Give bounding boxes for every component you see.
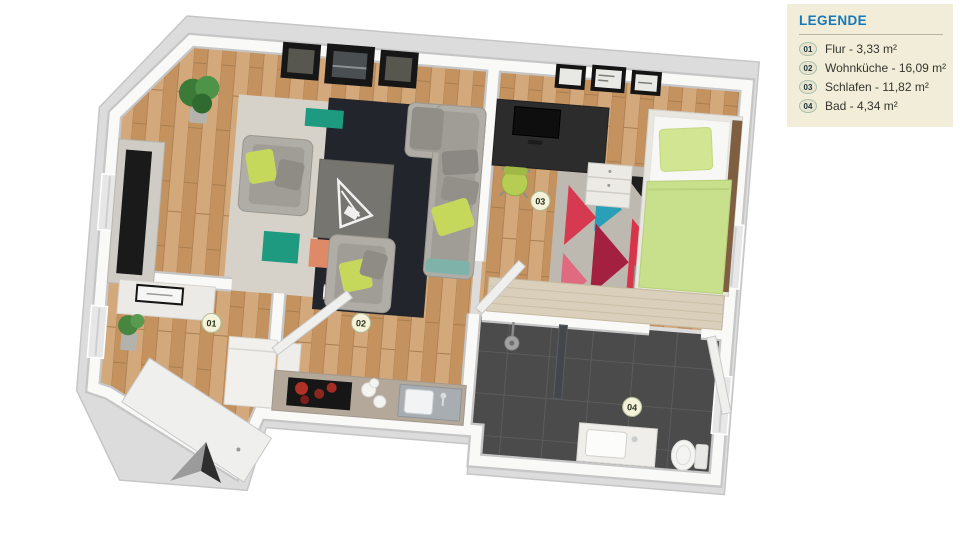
- bed-duvet: [639, 173, 732, 293]
- cooktop: [286, 377, 352, 410]
- hall-wardrobe: [117, 279, 215, 321]
- bath-vanity: [577, 423, 658, 467]
- monitor: [513, 107, 561, 139]
- svg-text:01: 01: [206, 318, 217, 329]
- apartment: 01 02 03 04: [70, 10, 759, 529]
- shower-arm: [512, 322, 513, 336]
- legend-badge-02: 02: [799, 61, 817, 75]
- legend-badge-03: 03: [799, 80, 817, 94]
- legend-panel: LEGENDE 01 Flur - 3,33 m² 02 Wohnküche -…: [787, 4, 953, 127]
- legend-title: LEGENDE: [799, 13, 943, 28]
- floorplan-page: 01 02 03 04 LEGEND: [0, 0, 960, 540]
- armchair-top: [238, 135, 314, 216]
- fridge-cabinet: [224, 336, 277, 408]
- svg-text:03: 03: [535, 196, 546, 207]
- coffee-table: [314, 159, 394, 243]
- svg-text:04: 04: [627, 402, 638, 413]
- legend-item-schlafen: 03 Schlafen - 11,82 m²: [799, 80, 943, 94]
- bed-pillow: [659, 127, 713, 171]
- legend-item-bad: 04 Bad - 4,34 m²: [799, 99, 943, 113]
- legend-item-wohnkueche: 02 Wohnküche - 16,09 m²: [799, 61, 943, 75]
- drawer-unit: [585, 163, 632, 208]
- kitchen-sink: [398, 384, 462, 421]
- legend-label-flur: Flur - 3,33 m²: [825, 42, 897, 56]
- legend-label-bad: Bad - 4,34 m²: [825, 99, 898, 113]
- svg-text:02: 02: [356, 318, 367, 329]
- legend-badge-01: 01: [799, 42, 817, 56]
- legend-item-flur: 01 Flur - 3,33 m²: [799, 42, 943, 56]
- bed: [635, 109, 743, 296]
- legend-divider: [799, 34, 943, 35]
- legend-label-schlafen: Schlafen - 11,82 m²: [825, 80, 929, 94]
- legend-badge-04: 04: [799, 99, 817, 113]
- legend-label-wohnkueche: Wohnküche - 16,09 m²: [825, 61, 946, 75]
